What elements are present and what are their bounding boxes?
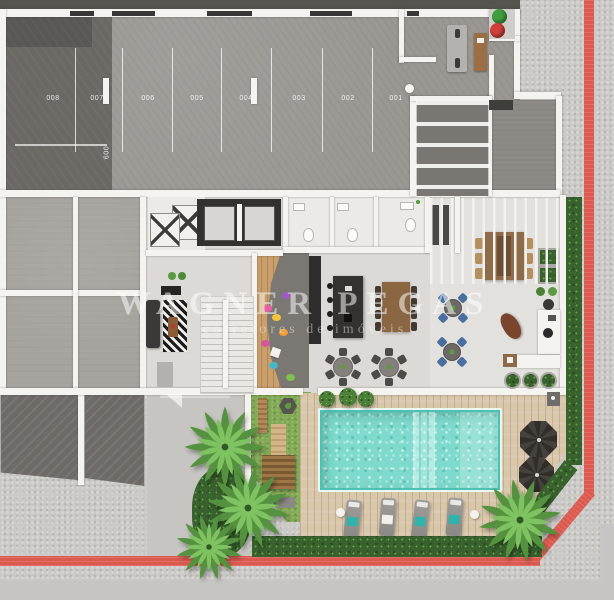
service-yard-floor — [487, 100, 560, 196]
storage-rooms-wall — [73, 197, 78, 390]
round-planter — [522, 372, 539, 389]
parking-space-label: 005 — [190, 95, 203, 102]
motorcycle-front-wheel — [455, 29, 460, 38]
deck-shrub — [339, 388, 357, 406]
kitchen-cabinets — [309, 256, 321, 344]
round-column — [405, 84, 414, 93]
dining-chair — [375, 310, 381, 319]
restroom-wall — [374, 197, 378, 247]
shower-head — [551, 396, 555, 400]
service-room-wall — [489, 55, 494, 100]
chair — [385, 378, 393, 386]
bean-bag — [272, 314, 281, 321]
floor-plan-render: 008 007 006 005 004 003 002 001 009 — [0, 0, 614, 600]
toilet — [405, 218, 416, 232]
light-globe — [336, 508, 345, 517]
pergola-slats — [430, 198, 563, 284]
bar-stool — [327, 325, 333, 331]
south-wall-west — [0, 388, 303, 395]
dining-table-indoor — [382, 282, 410, 332]
garden-walkway — [271, 424, 286, 457]
printer — [507, 357, 513, 363]
potted-plant — [178, 272, 186, 280]
street-right-corner — [601, 524, 614, 600]
potted-plant — [548, 287, 557, 296]
parking-divider-horizontal — [15, 144, 107, 146]
entry-mat — [157, 362, 173, 387]
parking-divider — [221, 48, 222, 152]
parking-divider — [322, 48, 323, 152]
corridor-wall — [146, 250, 283, 256]
parking-divider — [122, 48, 123, 152]
bar-stool — [327, 311, 333, 317]
dining-chair — [411, 322, 417, 331]
parking-space-label: 001 — [389, 95, 402, 102]
round-planter — [540, 372, 557, 389]
restroom-plant — [416, 200, 420, 204]
window-opening — [207, 11, 252, 16]
gazebo-leaf-icon — [285, 403, 291, 409]
service-doorway — [489, 100, 513, 110]
parking-divider — [172, 48, 173, 152]
storage-rooms-wall — [0, 290, 143, 296]
deck-shrub — [319, 391, 335, 407]
window-opening — [70, 11, 94, 16]
dining-chair — [411, 286, 417, 295]
restroom-wall-bottom — [283, 247, 430, 253]
hedge-right — [566, 197, 582, 465]
elevator-cabin-2 — [244, 206, 275, 241]
parking-space-label: 004 — [239, 95, 252, 102]
chair — [339, 378, 347, 386]
deck-shrub — [358, 391, 374, 407]
restroom-wall — [283, 197, 288, 247]
restroom-sink — [293, 203, 305, 211]
parking-divider — [75, 48, 76, 152]
pool-step-3 — [429, 412, 435, 488]
red-bin — [490, 23, 505, 38]
sofa — [146, 300, 160, 348]
cooktop — [344, 314, 352, 322]
vent-opening — [407, 11, 419, 16]
toilet — [347, 228, 358, 242]
restroom-sink — [337, 203, 349, 211]
window-opening — [310, 11, 352, 16]
bar-stool — [327, 297, 333, 303]
dining-chair — [375, 298, 381, 307]
bean-bag — [286, 374, 295, 381]
round-planter — [504, 372, 521, 389]
reception-desk-return — [517, 355, 560, 368]
green-bin — [492, 9, 507, 24]
red-curb-line-horizontal — [0, 556, 540, 566]
potted-plant — [168, 272, 176, 280]
restroom-wall — [330, 197, 334, 247]
bean-bag — [263, 305, 272, 312]
structural-column — [103, 78, 109, 104]
table-plant — [341, 365, 346, 370]
pool-step-2 — [421, 412, 427, 488]
motorcycle-rear-wheel — [455, 58, 460, 68]
window-opening — [112, 11, 155, 16]
pool-step-1 — [413, 412, 419, 488]
parking-divider — [271, 48, 272, 152]
storage-rooms-wall — [140, 197, 146, 390]
service-yard-wall-top — [514, 92, 561, 99]
table-plant — [387, 365, 392, 370]
desk-paper — [477, 38, 484, 43]
ramp-divider-wall — [78, 390, 84, 485]
garage-ramp-right — [84, 390, 145, 490]
staircase-rail — [223, 300, 228, 388]
bar-stool — [327, 283, 333, 289]
chair — [339, 348, 347, 356]
parking-space-label: 002 — [341, 95, 354, 102]
vehicle-ramp — [416, 101, 489, 196]
parking-divider — [372, 48, 373, 152]
table-plant — [450, 350, 455, 355]
bean-bag — [269, 362, 278, 369]
exterior-wall-left — [0, 9, 6, 390]
bean-bag — [282, 292, 290, 299]
chair — [385, 348, 393, 356]
dining-chair — [411, 310, 417, 319]
bean-bag — [261, 340, 270, 347]
service-room-wall — [399, 9, 404, 63]
parking-space-label: 006 — [141, 95, 154, 102]
dining-chair — [375, 286, 381, 295]
charcoal-grill — [543, 299, 554, 310]
elevator-cabin-1 — [204, 206, 235, 241]
parking-space-label: 007 — [90, 95, 103, 102]
toilet — [303, 228, 314, 242]
elevator-divider-wall — [237, 204, 242, 241]
sun-lounger — [379, 498, 397, 537]
restroom-sink — [400, 202, 414, 210]
red-curb-line-vertical — [584, 0, 594, 497]
street-bottom — [0, 580, 614, 600]
service-room-wall — [399, 57, 436, 62]
island-sink — [345, 286, 352, 291]
potted-plant — [536, 287, 545, 296]
parking-space-label: 003 — [292, 95, 305, 102]
dining-chair — [375, 322, 381, 331]
parking-space-label-side: 009 — [102, 146, 109, 159]
dining-chair — [411, 298, 417, 307]
palm-tree — [474, 474, 566, 566]
office-chair — [543, 328, 553, 338]
laptop — [548, 315, 556, 321]
service-yard-wall-right — [556, 96, 562, 196]
parking-space-label: 008 — [46, 95, 59, 102]
roof-edge-strip — [0, 0, 520, 9]
bean-bag — [279, 329, 288, 336]
duct-shaft-x — [150, 213, 180, 247]
palm-tree — [172, 510, 246, 584]
table-decor — [171, 324, 175, 329]
tv-console — [161, 286, 181, 295]
table-plant — [451, 306, 456, 311]
garage-ramp-left — [0, 390, 80, 486]
